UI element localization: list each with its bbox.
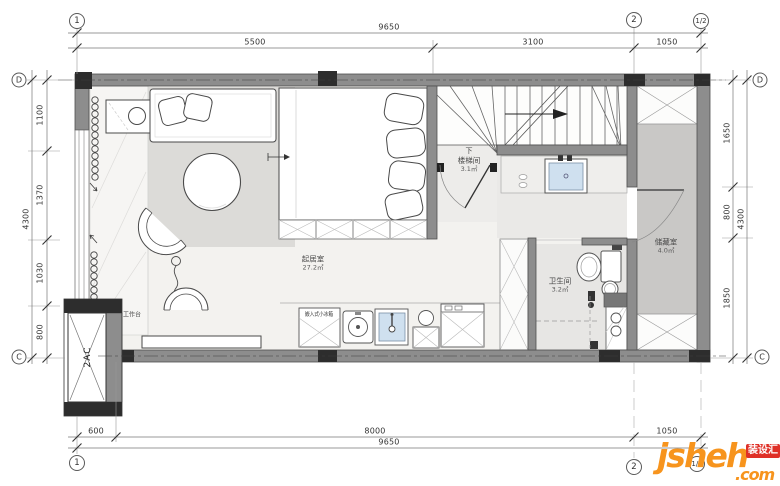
- dim-bottom-seg-600: 600: [88, 427, 104, 436]
- dim-top-seg-5500: 5500: [244, 38, 265, 47]
- dim-top-seg-1050: 1050: [656, 38, 677, 47]
- bed-storage-cells: [279, 220, 427, 239]
- dim-left-total: 4300: [22, 208, 31, 229]
- grid-bubble-1-bottom: 1: [69, 455, 85, 471]
- washing-machine: [441, 304, 484, 347]
- vanity-counter: [501, 155, 627, 193]
- side-cabinet: [106, 100, 152, 133]
- grid-bubble-c-right: C: [755, 350, 770, 365]
- grid-bubble-1-top: 1: [69, 13, 85, 29]
- dim-left-seg-1030: 1030: [36, 262, 45, 283]
- dim-bottom-total: 9650: [378, 438, 399, 447]
- ac-duct-label: 2AC: [83, 346, 93, 367]
- bathroom-name: 卫生间: [549, 276, 572, 285]
- room-label-bathroom: 卫生间 3.2㎡: [549, 276, 572, 294]
- ac-duct: [64, 299, 122, 416]
- dim-left-seg-1370: 1370: [36, 184, 45, 205]
- grid-bubble-d-left: D: [12, 73, 27, 88]
- grid-bubble-2-bottom: 2: [626, 459, 642, 475]
- grid-bubble-c-left: C: [12, 350, 27, 365]
- room-label-stairwell: 下 楼梯间 3.1㎡: [458, 147, 481, 173]
- kitchen-sink: [375, 309, 408, 345]
- window: [75, 130, 89, 302]
- dim-left-seg-1100: 1100: [36, 104, 45, 125]
- dim-right-seg-800: 800: [723, 204, 732, 220]
- floor-plan-page: 1 2 1/2 D C D C 1 2 1/2 9650 5500 3100 1…: [0, 0, 780, 486]
- washbasin: [549, 163, 583, 190]
- stairwell-area: 3.1㎡: [458, 165, 481, 173]
- dim-top-total: 9650: [378, 23, 399, 32]
- room-label-storage: 储藏室 4.0㎡: [655, 237, 678, 255]
- dim-bottom-seg-8000: 8000: [364, 427, 385, 436]
- dim-left-seg-800: 800: [36, 324, 45, 340]
- storage-area: 4.0㎡: [655, 247, 678, 255]
- stairwell-name: 楼梯间: [458, 156, 481, 165]
- storage-name: 储藏室: [655, 237, 678, 246]
- bed: [268, 88, 427, 239]
- grid-bubble-d-right: D: [753, 73, 768, 88]
- watermark-brand: jsheh: [657, 439, 747, 472]
- tall-cabinet: [500, 239, 528, 350]
- dim-right-seg-1650: 1650: [723, 122, 732, 143]
- watermark-tld: .com: [735, 465, 774, 484]
- grid-bubble-2-top: 2: [626, 12, 642, 28]
- dim-right-total: 4300: [737, 208, 746, 229]
- dim-bottom-seg-1050: 1050: [656, 427, 677, 436]
- watermark-badge: 装设汇: [746, 444, 780, 458]
- round-table: [184, 154, 241, 211]
- watermark: jsheh .com 装设汇: [655, 439, 780, 486]
- living-area: 27.2㎡: [302, 264, 325, 272]
- daybed: [150, 89, 276, 142]
- stair-down-label: 下: [458, 147, 481, 156]
- dim-right-seg-1850: 1850: [723, 287, 732, 308]
- grid-bubble-half-top: 1/2: [693, 13, 709, 29]
- cooktop: [343, 311, 373, 343]
- worktop-label: 工作台: [123, 310, 141, 319]
- dim-top-seg-3100: 3100: [522, 38, 543, 47]
- living-name: 起居室: [302, 254, 325, 263]
- bathroom-area: 3.2㎡: [549, 286, 572, 294]
- toilet-tank: [601, 251, 621, 282]
- worktop-desk: [142, 336, 261, 348]
- mini-fridge-label: 嵌入式小冰箱: [305, 310, 333, 318]
- room-label-living: 起居室 27.2㎡: [302, 254, 325, 272]
